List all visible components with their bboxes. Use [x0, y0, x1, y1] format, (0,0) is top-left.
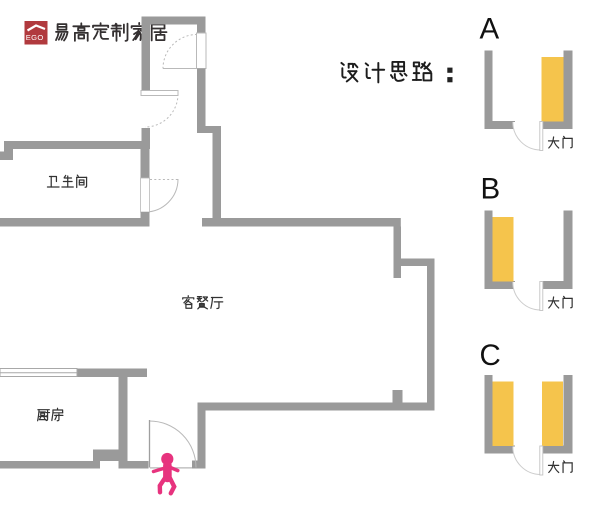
svg-text:A: A: [480, 13, 500, 46]
svg-text:EGO: EGO: [26, 33, 44, 42]
svg-text:C: C: [480, 339, 501, 372]
svg-text:B: B: [481, 173, 501, 206]
